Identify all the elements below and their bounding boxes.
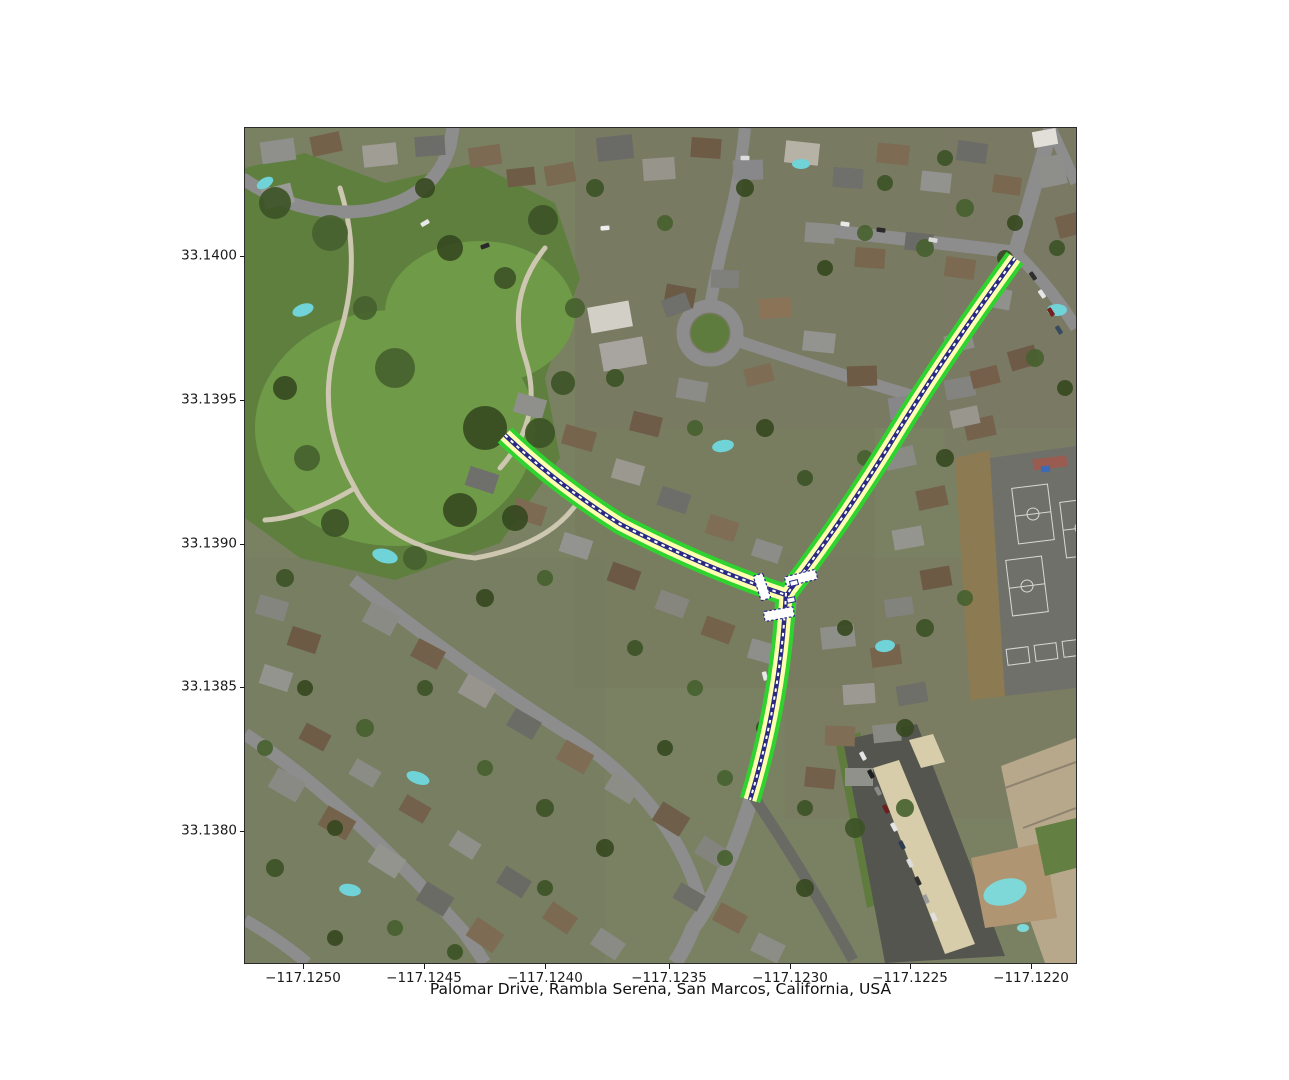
y-tick-mark: [240, 400, 245, 401]
tree: [845, 818, 865, 838]
house-roof: [690, 137, 721, 159]
y-tick-label: 33.1395: [181, 393, 237, 408]
tree: [259, 187, 291, 219]
house-roof: [758, 297, 791, 319]
tree: [937, 150, 953, 166]
house-roof: [944, 256, 976, 280]
tree: [536, 799, 554, 817]
y-tick-mark: [240, 687, 245, 688]
tree: [857, 225, 873, 241]
tree: [916, 619, 934, 637]
x-tick-mark: [1031, 964, 1032, 969]
tree: [797, 470, 813, 486]
junction-glyph: [787, 597, 796, 604]
y-tick-mark: [240, 256, 245, 257]
tree: [415, 178, 435, 198]
tree: [375, 348, 415, 388]
x-tick-mark: [790, 964, 791, 969]
car: [600, 225, 609, 230]
tree: [447, 944, 463, 960]
house-roof: [804, 222, 835, 244]
y-tick-label: 33.1400: [181, 249, 237, 264]
house-roof: [854, 247, 885, 269]
tree: [353, 296, 377, 320]
tree: [502, 505, 528, 531]
x-tick-mark: [910, 964, 911, 969]
car: [741, 156, 750, 161]
tree: [477, 760, 493, 776]
tree: [877, 175, 893, 191]
y-tick-label: 33.1385: [181, 680, 237, 695]
house-roof: [832, 167, 863, 189]
tree: [356, 719, 374, 737]
tree: [657, 740, 673, 756]
map-title: Palomar Drive, Rambla Serena, San Marcos…: [245, 980, 1076, 998]
tree: [957, 590, 973, 606]
tree: [1026, 349, 1044, 367]
tree: [257, 740, 273, 756]
tree: [528, 205, 558, 235]
playground-equip: [1041, 465, 1051, 472]
x-tick-mark: [424, 964, 425, 969]
tree: [606, 369, 624, 387]
house-roof: [842, 683, 875, 705]
swimming-pool: [792, 159, 810, 169]
cul-de-sac-island: [691, 314, 729, 352]
house-roof: [847, 365, 878, 386]
tree: [687, 680, 703, 696]
tree: [387, 920, 403, 936]
tree: [586, 179, 604, 197]
tree: [756, 419, 774, 437]
tree: [627, 640, 643, 656]
tree: [276, 569, 294, 587]
tree: [687, 420, 703, 436]
tree: [1057, 380, 1073, 396]
house-roof: [596, 134, 634, 162]
tree: [321, 509, 349, 537]
tree: [297, 680, 313, 696]
house-roof: [414, 135, 445, 157]
house-roof: [804, 766, 836, 789]
tree: [437, 235, 463, 261]
tree: [896, 719, 914, 737]
tree: [1049, 240, 1065, 256]
tree: [537, 880, 553, 896]
house-roof: [642, 157, 675, 181]
tree: [312, 215, 348, 251]
tree: [717, 770, 733, 786]
x-tick-mark: [669, 964, 670, 969]
tree: [443, 493, 477, 527]
tree: [896, 799, 914, 817]
tree: [417, 680, 433, 696]
y-tick-label: 33.1380: [181, 824, 237, 839]
tree: [736, 179, 754, 197]
x-tick-mark: [303, 964, 304, 969]
tree: [494, 267, 516, 289]
y-tick-label: 33.1390: [181, 537, 237, 552]
house-roof: [825, 725, 856, 746]
house-roof: [876, 142, 910, 165]
tree: [327, 930, 343, 946]
asphalt-yard: [990, 446, 1076, 696]
x-tick-mark: [545, 964, 546, 969]
tree: [717, 850, 733, 866]
tree: [797, 800, 813, 816]
tree: [837, 620, 853, 636]
tree: [294, 445, 320, 471]
satellite-map: [245, 128, 1076, 963]
map-figure: −117.1250−117.1245−117.1240−117.1235−117…: [0, 0, 1289, 1080]
y-tick-mark: [240, 544, 245, 545]
tree: [596, 839, 614, 857]
tree: [273, 376, 297, 400]
tree: [327, 820, 343, 836]
tree: [1007, 215, 1023, 231]
tree: [537, 570, 553, 586]
spa: [1017, 924, 1029, 932]
tree: [403, 546, 427, 570]
satellite-scene: [245, 128, 1076, 963]
tree: [796, 879, 814, 897]
tree: [266, 859, 284, 877]
house-roof: [711, 270, 740, 289]
tree: [936, 449, 954, 467]
tree: [657, 215, 673, 231]
house-roof: [956, 140, 988, 164]
house-roof: [362, 142, 398, 167]
house-roof: [733, 159, 764, 180]
tree: [476, 589, 494, 607]
house-roof: [920, 170, 952, 193]
house-roof: [260, 138, 297, 165]
tree: [565, 298, 585, 318]
house-roof: [802, 330, 836, 353]
y-tick-mark: [240, 831, 245, 832]
tree: [551, 371, 575, 395]
tree: [956, 199, 974, 217]
tree: [817, 260, 833, 276]
house-roof: [506, 167, 536, 188]
